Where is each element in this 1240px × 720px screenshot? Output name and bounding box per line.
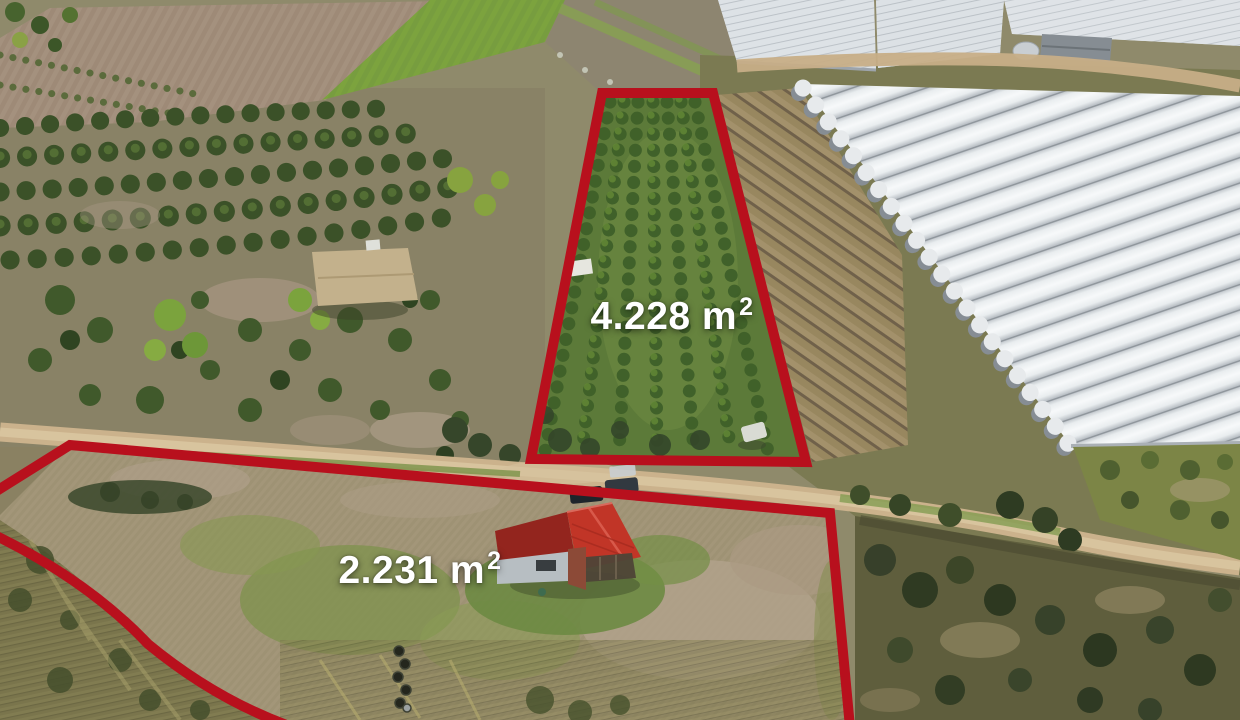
aerial-photo: 4.228 m2 2.231 m2	[0, 0, 1240, 720]
area-label-house-text: 2.231 m	[338, 549, 485, 592]
area-label-orchard-text: 4.228 m	[590, 295, 737, 338]
house-window	[536, 560, 556, 571]
tan-farmhouse	[312, 239, 418, 320]
area-label-house-exponent: 2	[487, 547, 501, 575]
area-label-house: 2.231 m2	[338, 549, 501, 593]
area-label-orchard: 4.228 m2	[590, 295, 753, 339]
terrain-scene	[0, 0, 1240, 720]
area-label-orchard-exponent: 2	[739, 293, 753, 321]
